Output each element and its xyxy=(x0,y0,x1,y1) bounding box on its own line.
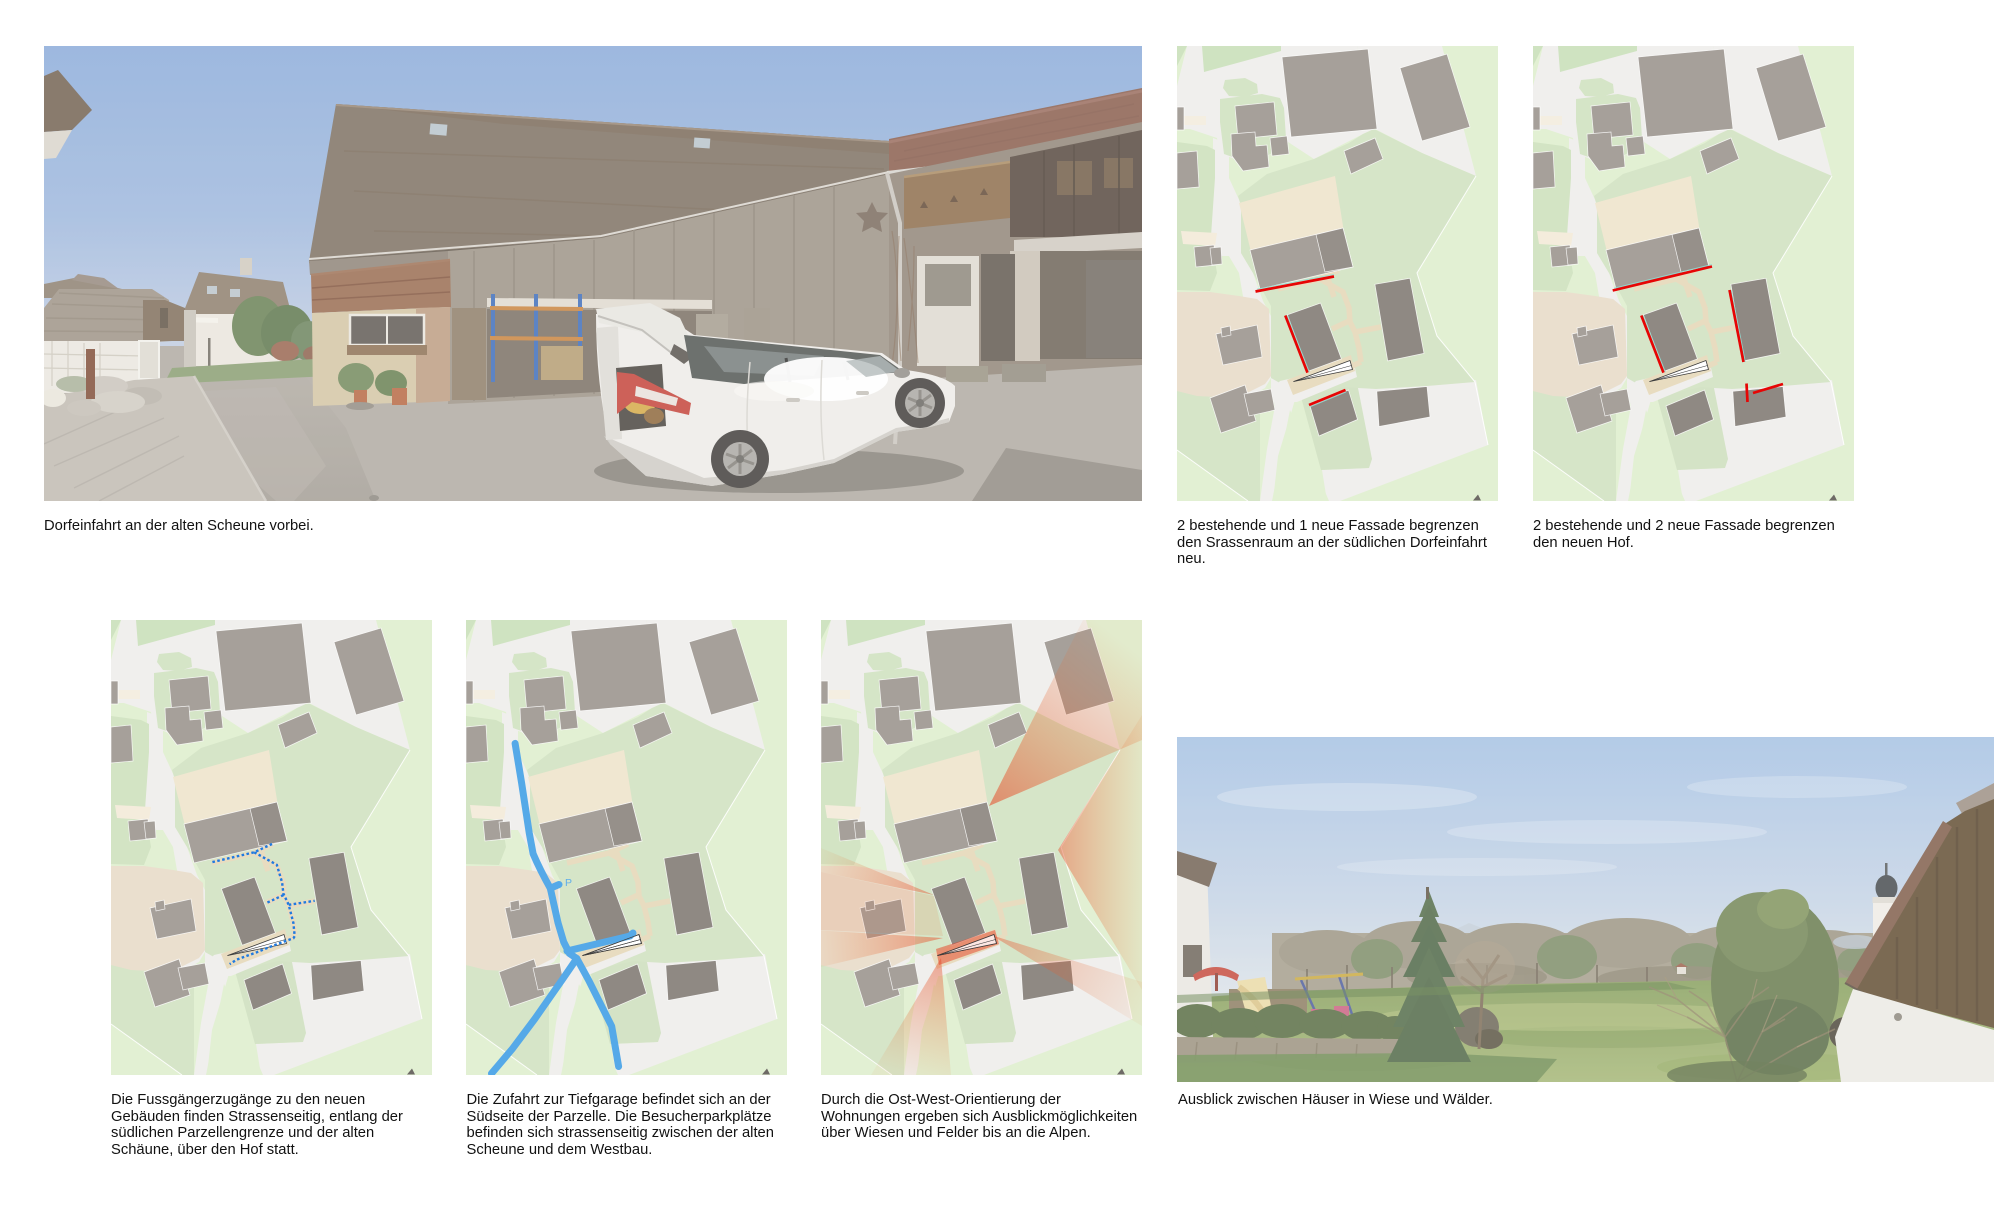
svg-text:P: P xyxy=(565,877,572,889)
